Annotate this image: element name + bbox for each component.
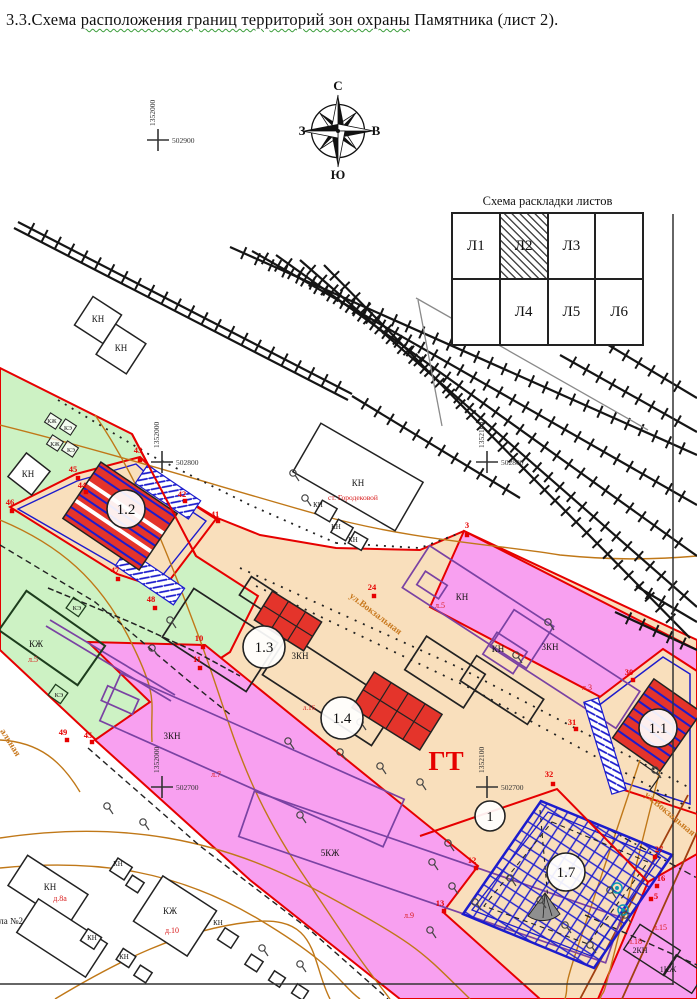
- building-label: КН: [44, 882, 57, 892]
- vertex-number-label: 45: [84, 730, 93, 740]
- circled-number-text: 1: [487, 810, 494, 825]
- tree-icon: [140, 819, 149, 830]
- circled-object-number: 1.7: [547, 853, 585, 891]
- cross-northing: 1352000: [148, 100, 157, 127]
- lot-number-label: л.16: [303, 704, 316, 712]
- building-label: КН: [113, 860, 123, 868]
- vertex-number-label: 12: [468, 855, 477, 865]
- compass-label: В: [372, 123, 381, 138]
- cross-easting: 502700: [501, 783, 524, 792]
- vertex-number-label: 5: [654, 891, 658, 901]
- building-label: КН: [87, 934, 97, 942]
- compass-rose: СЮЗВ: [299, 78, 381, 182]
- vertex-dot: [649, 897, 653, 901]
- vertex-dot: [474, 866, 478, 870]
- building-label: КН: [22, 469, 35, 479]
- building-label: КН: [352, 478, 365, 488]
- vertex-number-label: 30: [625, 667, 634, 677]
- vertex-dot: [65, 738, 69, 742]
- compass-label: С: [333, 78, 342, 93]
- vertex-dot: [216, 519, 220, 523]
- tree-icon: [297, 961, 306, 972]
- compass-label: Ю: [331, 167, 346, 182]
- lot-number-label: л.3: [582, 683, 592, 692]
- vertex-dot: [574, 727, 578, 731]
- lot-number-label: л.7: [211, 770, 221, 779]
- sheet-cell: Л3: [548, 213, 596, 279]
- title-underlined: расположения границ территорий зон охран…: [81, 10, 410, 29]
- vertex-number-label: 31: [568, 717, 577, 727]
- station-label: ст. Городековой: [328, 493, 378, 502]
- circled-number-text: 1.3: [255, 640, 274, 656]
- title-prefix: 3.3.Схема: [6, 10, 81, 29]
- building-label: КН: [348, 536, 358, 544]
- vertex-number-label: 13: [436, 898, 445, 908]
- compass-label: З: [299, 123, 306, 138]
- circled-number-text: 1.1: [649, 721, 668, 737]
- vertex-number-label: 10: [195, 633, 204, 643]
- building-label: КЭ: [67, 448, 75, 454]
- building-label: КН: [119, 953, 129, 961]
- vertex-number-label: 3: [465, 520, 469, 530]
- circled-object-number: 1.4: [321, 697, 363, 739]
- title-suffix: Памятника (лист 2).: [410, 10, 559, 29]
- vertex-number-label: 11: [193, 654, 201, 664]
- tree-icon: [302, 495, 311, 506]
- sheet-cell: Л4: [500, 279, 548, 345]
- vertex-dot: [10, 509, 14, 513]
- lot-number-label: л.15: [653, 923, 667, 932]
- vertex-dot: [442, 909, 446, 913]
- vertex-dot: [655, 884, 659, 888]
- sheet-layout-grid: Л1 Л2 Л3 Л4 Л5 Л6: [451, 212, 644, 346]
- building-label: КН: [492, 644, 505, 654]
- building-label: школа №2: [0, 916, 23, 926]
- lot-number-label: д.8а: [53, 894, 67, 903]
- vertex-dot: [631, 678, 635, 682]
- circled-object-number: 1: [475, 801, 505, 831]
- vertex-number-label: 46: [6, 497, 15, 507]
- building-label: КЖ: [29, 639, 44, 649]
- cross-easting: 502900: [172, 136, 195, 145]
- vertex-dot: [465, 533, 469, 537]
- vertex-number-label: 41: [211, 509, 220, 519]
- vertex-dot: [90, 740, 94, 744]
- cross-easting: 502700: [176, 783, 199, 792]
- vertex-dot: [153, 606, 157, 610]
- vertex-dot: [138, 458, 142, 462]
- circled-number-text: 1.2: [117, 502, 136, 518]
- circled-number-text: 1.7: [557, 865, 576, 881]
- circled-object-number: 1.1: [639, 709, 677, 747]
- circled-object-number: 1.3: [243, 626, 285, 668]
- circled-number-text: 1.4: [333, 711, 352, 727]
- building-label: КН: [313, 501, 323, 509]
- vertex-dot: [551, 782, 555, 786]
- vertex-number-label: 32: [545, 769, 554, 779]
- building-label: КЖ: [50, 442, 60, 448]
- lot-number-label: л.5: [435, 601, 445, 610]
- vertex-number-label: 49: [59, 727, 68, 737]
- building-label: КЭ: [73, 605, 82, 612]
- tree-icon: [259, 945, 268, 956]
- vertex-dot: [183, 499, 187, 503]
- sheet-layout-legend: Схема раскладки листов Л1 Л2 Л3 Л4 Л5 Л6: [451, 194, 644, 346]
- sheet-cell: Л5: [548, 279, 596, 345]
- coordinate-cross: 5029001352000: [147, 100, 195, 152]
- building-label: 5КЖ: [321, 848, 341, 858]
- vertex-number-label: 45: [69, 464, 78, 474]
- vertex-number-label: 47: [111, 565, 120, 575]
- circled-object-number: 1.2: [107, 490, 145, 528]
- lot-number-label: д.10: [165, 926, 179, 935]
- vertex-number-label: 44: [78, 480, 87, 490]
- cross-northing: 1352000: [152, 747, 161, 774]
- building-label: КН: [115, 343, 128, 353]
- building-label: КН: [213, 919, 223, 927]
- building-label: КЖ: [47, 419, 57, 425]
- vertex-number-label: 16: [657, 873, 666, 883]
- vertex-dot: [372, 594, 376, 598]
- sheet-cell: Л1: [452, 213, 500, 279]
- building-label: 1КЖ: [660, 965, 677, 974]
- cross-northing: 1352100: [477, 422, 486, 449]
- vertex-dot: [653, 855, 657, 859]
- vertex-dot: [84, 490, 88, 494]
- sheet-cell-current: Л2: [500, 213, 548, 279]
- map-canvas: СЮЗВ 50290013520005028001352000502800135…: [0, 0, 697, 999]
- vertex-number-label: 48: [147, 594, 156, 604]
- building-label: КН: [456, 592, 469, 602]
- vertex-dot: [198, 666, 202, 670]
- cross-easting: 502800: [176, 458, 199, 467]
- lot-number-label: л.18: [628, 937, 642, 946]
- building-label: КЖ: [163, 906, 178, 916]
- coordinate-cross: 5028001352000: [151, 422, 199, 474]
- lot-number-label: л.5: [28, 655, 38, 664]
- sheet-cell: [595, 213, 643, 279]
- vertex-number-label: 27: [655, 844, 664, 854]
- building-label: 3КН: [541, 642, 559, 652]
- vertex-dot: [116, 577, 120, 581]
- sheet-cell: Л6: [595, 279, 643, 345]
- vertex-dot: [201, 645, 205, 649]
- cross-northing: 1352000: [152, 422, 161, 449]
- vertex-number-label: 43: [134, 445, 143, 455]
- scheme-page: { "title": { "prefix": "3.3.Схема ", "un…: [0, 0, 697, 999]
- vertex-number-label: 24: [368, 582, 377, 592]
- coordinate-cross: 5028001352100: [476, 422, 524, 474]
- tree-icon: [104, 803, 113, 814]
- building-label: КН: [92, 314, 105, 324]
- sheet-layout-title: Схема раскладки листов: [451, 194, 644, 209]
- building-label: КЭ: [64, 426, 72, 432]
- building-label: 3КН: [163, 731, 181, 741]
- page-title: 3.3.Схема расположения границ территорий…: [6, 10, 559, 30]
- building-label: КЭ: [55, 692, 64, 699]
- cross-northing: 1352100: [477, 747, 486, 774]
- lot-number-label: л.9: [404, 911, 414, 920]
- sheet-cell: [452, 279, 500, 345]
- vertex-number-label: 42: [178, 489, 187, 499]
- building-label: 3КН: [291, 651, 309, 661]
- building-label: КН: [331, 523, 341, 531]
- gt-zone-label: ГТ: [428, 746, 463, 776]
- cross-easting: 502800: [501, 458, 524, 467]
- building-label: 2КН: [632, 946, 647, 955]
